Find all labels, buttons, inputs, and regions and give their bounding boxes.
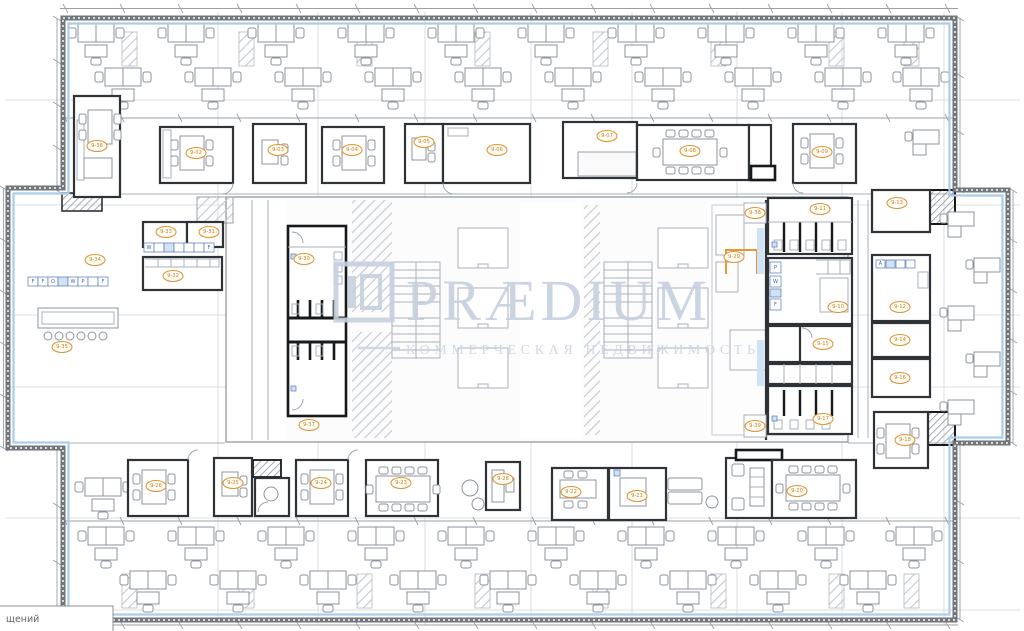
- svg-text:9-29: 9-29: [728, 254, 740, 260]
- svg-text:9-18: 9-18: [899, 437, 911, 443]
- room: [443, 124, 530, 183]
- room-label: 9-38: [745, 208, 765, 219]
- svg-text:9-02: 9-02: [190, 150, 202, 156]
- svg-text:9-39: 9-39: [749, 423, 761, 429]
- room-label: 9-21: [627, 491, 647, 502]
- room-label: 9-08: [680, 146, 700, 157]
- open-office-desks-right-bay: [940, 212, 1000, 425]
- svg-text:9-36: 9-36: [91, 143, 103, 149]
- svg-text:9-34: 9-34: [89, 257, 101, 263]
- svg-text:9-17: 9-17: [817, 416, 829, 422]
- reception-counter: [38, 308, 118, 340]
- room-label: 9-17: [813, 414, 833, 425]
- svg-text:F: F: [42, 279, 45, 285]
- svg-text:F: F: [774, 302, 777, 308]
- room-label: 9-34: [85, 255, 105, 266]
- room-label: 9-33: [156, 227, 176, 238]
- svg-text:9-04: 9-04: [346, 147, 358, 153]
- room-label: 9-14: [890, 335, 910, 346]
- room-label: 9-07: [597, 131, 617, 142]
- svg-text:9-08: 9-08: [684, 148, 696, 154]
- svg-text:9-15: 9-15: [817, 341, 829, 347]
- svg-text:9-20: 9-20: [791, 488, 803, 494]
- elevator: [458, 228, 508, 268]
- right-zone: P W F A: [768, 190, 930, 468]
- svg-text:F: F: [208, 245, 211, 251]
- svg-text:9-07: 9-07: [601, 133, 613, 139]
- meeting-rooms-top: [74, 96, 856, 197]
- svg-text:9-32: 9-32: [167, 273, 179, 279]
- room-label: 9-32: [163, 271, 183, 282]
- left-zone: W F F F O W P F: [28, 222, 223, 340]
- room-label: 9-23: [391, 478, 411, 489]
- boardroom: [772, 460, 856, 518]
- svg-text:9-30: 9-30: [298, 256, 310, 262]
- room-label: 9-05: [414, 137, 434, 148]
- lounge: [668, 450, 782, 518]
- room-label: 9-29: [724, 252, 744, 263]
- room-label: 9-06: [487, 145, 507, 156]
- room-label: 9-25: [223, 478, 243, 489]
- room-label: 9-24: [311, 478, 331, 489]
- room-label: 9-03: [268, 145, 288, 156]
- svg-text:W: W: [147, 245, 152, 251]
- room-label: 9-04: [342, 145, 362, 156]
- svg-text:9-35: 9-35: [56, 344, 68, 350]
- wall-cabinet-row: F F O W P F: [28, 277, 108, 286]
- svg-text:O: O: [51, 279, 55, 285]
- svg-text:9-16: 9-16: [894, 375, 906, 381]
- pantry-cabinets: P W F: [770, 262, 781, 310]
- schedule-box: щений: [0, 606, 113, 631]
- svg-text:9-11: 9-11: [814, 206, 826, 212]
- room: [749, 125, 775, 180]
- copy-room-cabinets: W F: [144, 243, 214, 252]
- elevator: [658, 228, 708, 268]
- svg-text:W: W: [773, 279, 778, 285]
- svg-text:F: F: [32, 279, 35, 285]
- watermark-brand: PRÆDIUM: [406, 268, 711, 333]
- room-label: 9-39: [745, 421, 765, 432]
- room-label: 9-35: [52, 342, 72, 353]
- room-label: 9-26: [146, 481, 166, 492]
- room-label: 9-15: [813, 339, 833, 350]
- svg-text:9-26: 9-26: [150, 483, 162, 489]
- floor-plan-screenshot: W F F F O W P F P W F: [0, 0, 1024, 631]
- svg-text:9-22: 9-22: [565, 489, 577, 495]
- room-label: 9-22: [561, 487, 581, 498]
- room-label: 9-20: [787, 486, 807, 497]
- svg-text:9-31: 9-31: [203, 229, 215, 235]
- svg-text:W: W: [71, 279, 76, 285]
- svg-text:9-13: 9-13: [891, 200, 903, 206]
- svg-text:9-28: 9-28: [497, 476, 509, 482]
- svg-text:F: F: [102, 279, 105, 285]
- svg-text:9-03: 9-03: [272, 147, 284, 153]
- phone-booth: [486, 462, 520, 510]
- room-label: 9-36: [87, 141, 107, 152]
- room-label: 9-10: [828, 302, 848, 313]
- svg-text:P: P: [774, 265, 777, 271]
- room: [563, 122, 637, 178]
- room-label: 9-16: [890, 373, 910, 384]
- room-label: 9-13: [887, 198, 907, 209]
- svg-text:9-10: 9-10: [832, 304, 844, 310]
- svg-text:9-14: 9-14: [894, 337, 906, 343]
- room-label: 9-18: [895, 435, 915, 446]
- room-label: 9-12: [890, 302, 910, 313]
- svg-text:9-24: 9-24: [315, 480, 327, 486]
- room-label: 9-30: [294, 254, 314, 265]
- room-label: 9-09: [812, 147, 832, 158]
- svg-text:9-37: 9-37: [303, 422, 315, 428]
- room-label: 9-37: [299, 420, 319, 431]
- floor-plan-svg: W F F F O W P F P W F: [0, 0, 1024, 631]
- room-label: 9-28: [493, 474, 513, 485]
- svg-text:P: P: [81, 279, 84, 285]
- svg-text:9-12: 9-12: [894, 304, 906, 310]
- wc-room: [255, 478, 289, 516]
- svg-text:9-23: 9-23: [395, 480, 407, 486]
- room-label: 9-02: [186, 148, 206, 159]
- svg-text:9-09: 9-09: [816, 149, 828, 155]
- room: [405, 124, 443, 183]
- watermark-tagline: КОММЕРЧЕСКАЯ НЕДВИЖИМОСТЬ: [406, 343, 760, 358]
- room-label: 9-11: [810, 204, 830, 215]
- room-label: 9-31: [199, 227, 219, 238]
- svg-text:A: A: [879, 261, 883, 267]
- svg-text:9-06: 9-06: [491, 147, 503, 153]
- svg-text:9-05: 9-05: [418, 139, 430, 145]
- schedule-partial-text: щений: [6, 614, 39, 625]
- svg-text:9-21: 9-21: [631, 493, 643, 499]
- svg-text:9-25: 9-25: [227, 480, 239, 486]
- svg-text:9-38: 9-38: [749, 210, 761, 216]
- svg-text:9-33: 9-33: [160, 229, 172, 235]
